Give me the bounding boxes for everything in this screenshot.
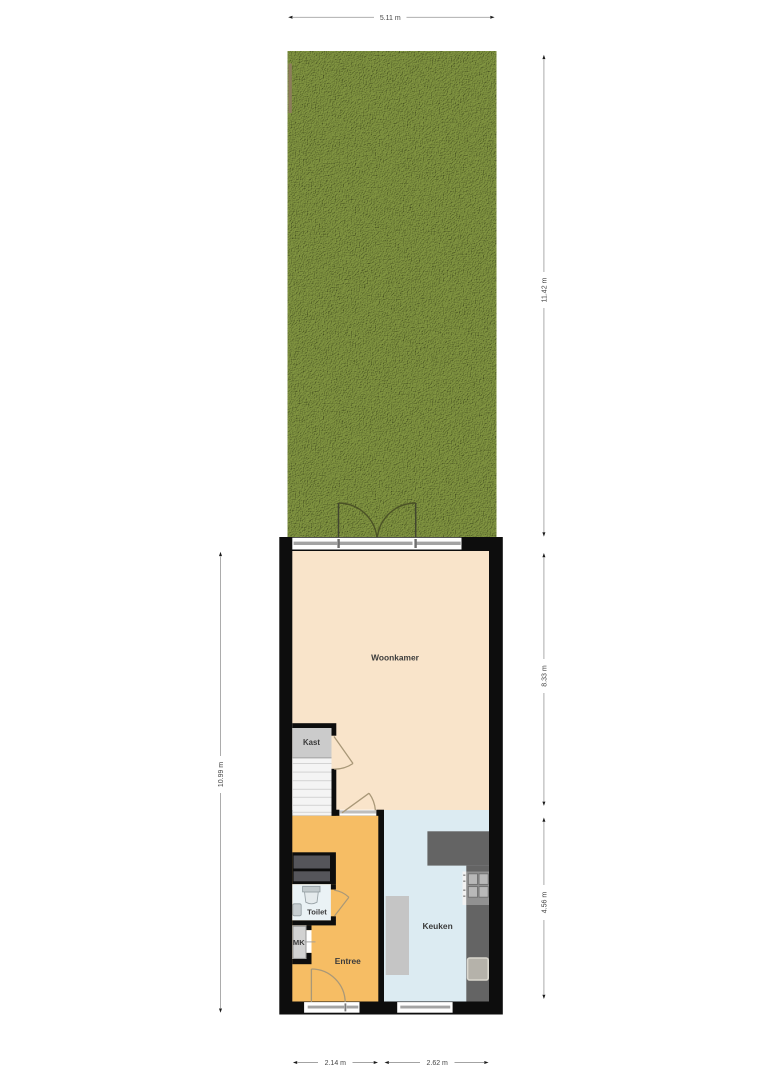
svg-text:5.11 m: 5.11 m xyxy=(380,15,401,22)
svg-text:11.42 m: 11.42 m xyxy=(542,277,549,302)
svg-text:Toilet: Toilet xyxy=(307,907,327,916)
svg-text:MK: MK xyxy=(293,938,305,947)
svg-text:Entree: Entree xyxy=(335,956,361,966)
svg-text:10.99 m: 10.99 m xyxy=(218,762,225,787)
svg-text:2.62 m: 2.62 m xyxy=(426,1060,448,1067)
svg-text:4.56 m: 4.56 m xyxy=(542,892,549,914)
svg-text:Keuken: Keuken xyxy=(422,921,452,931)
svg-text:Kast: Kast xyxy=(303,738,320,747)
svg-text:Woonkamer: Woonkamer xyxy=(371,653,420,663)
svg-text:2.14 m: 2.14 m xyxy=(325,1060,347,1067)
svg-text:8.33 m: 8.33 m xyxy=(542,665,549,687)
